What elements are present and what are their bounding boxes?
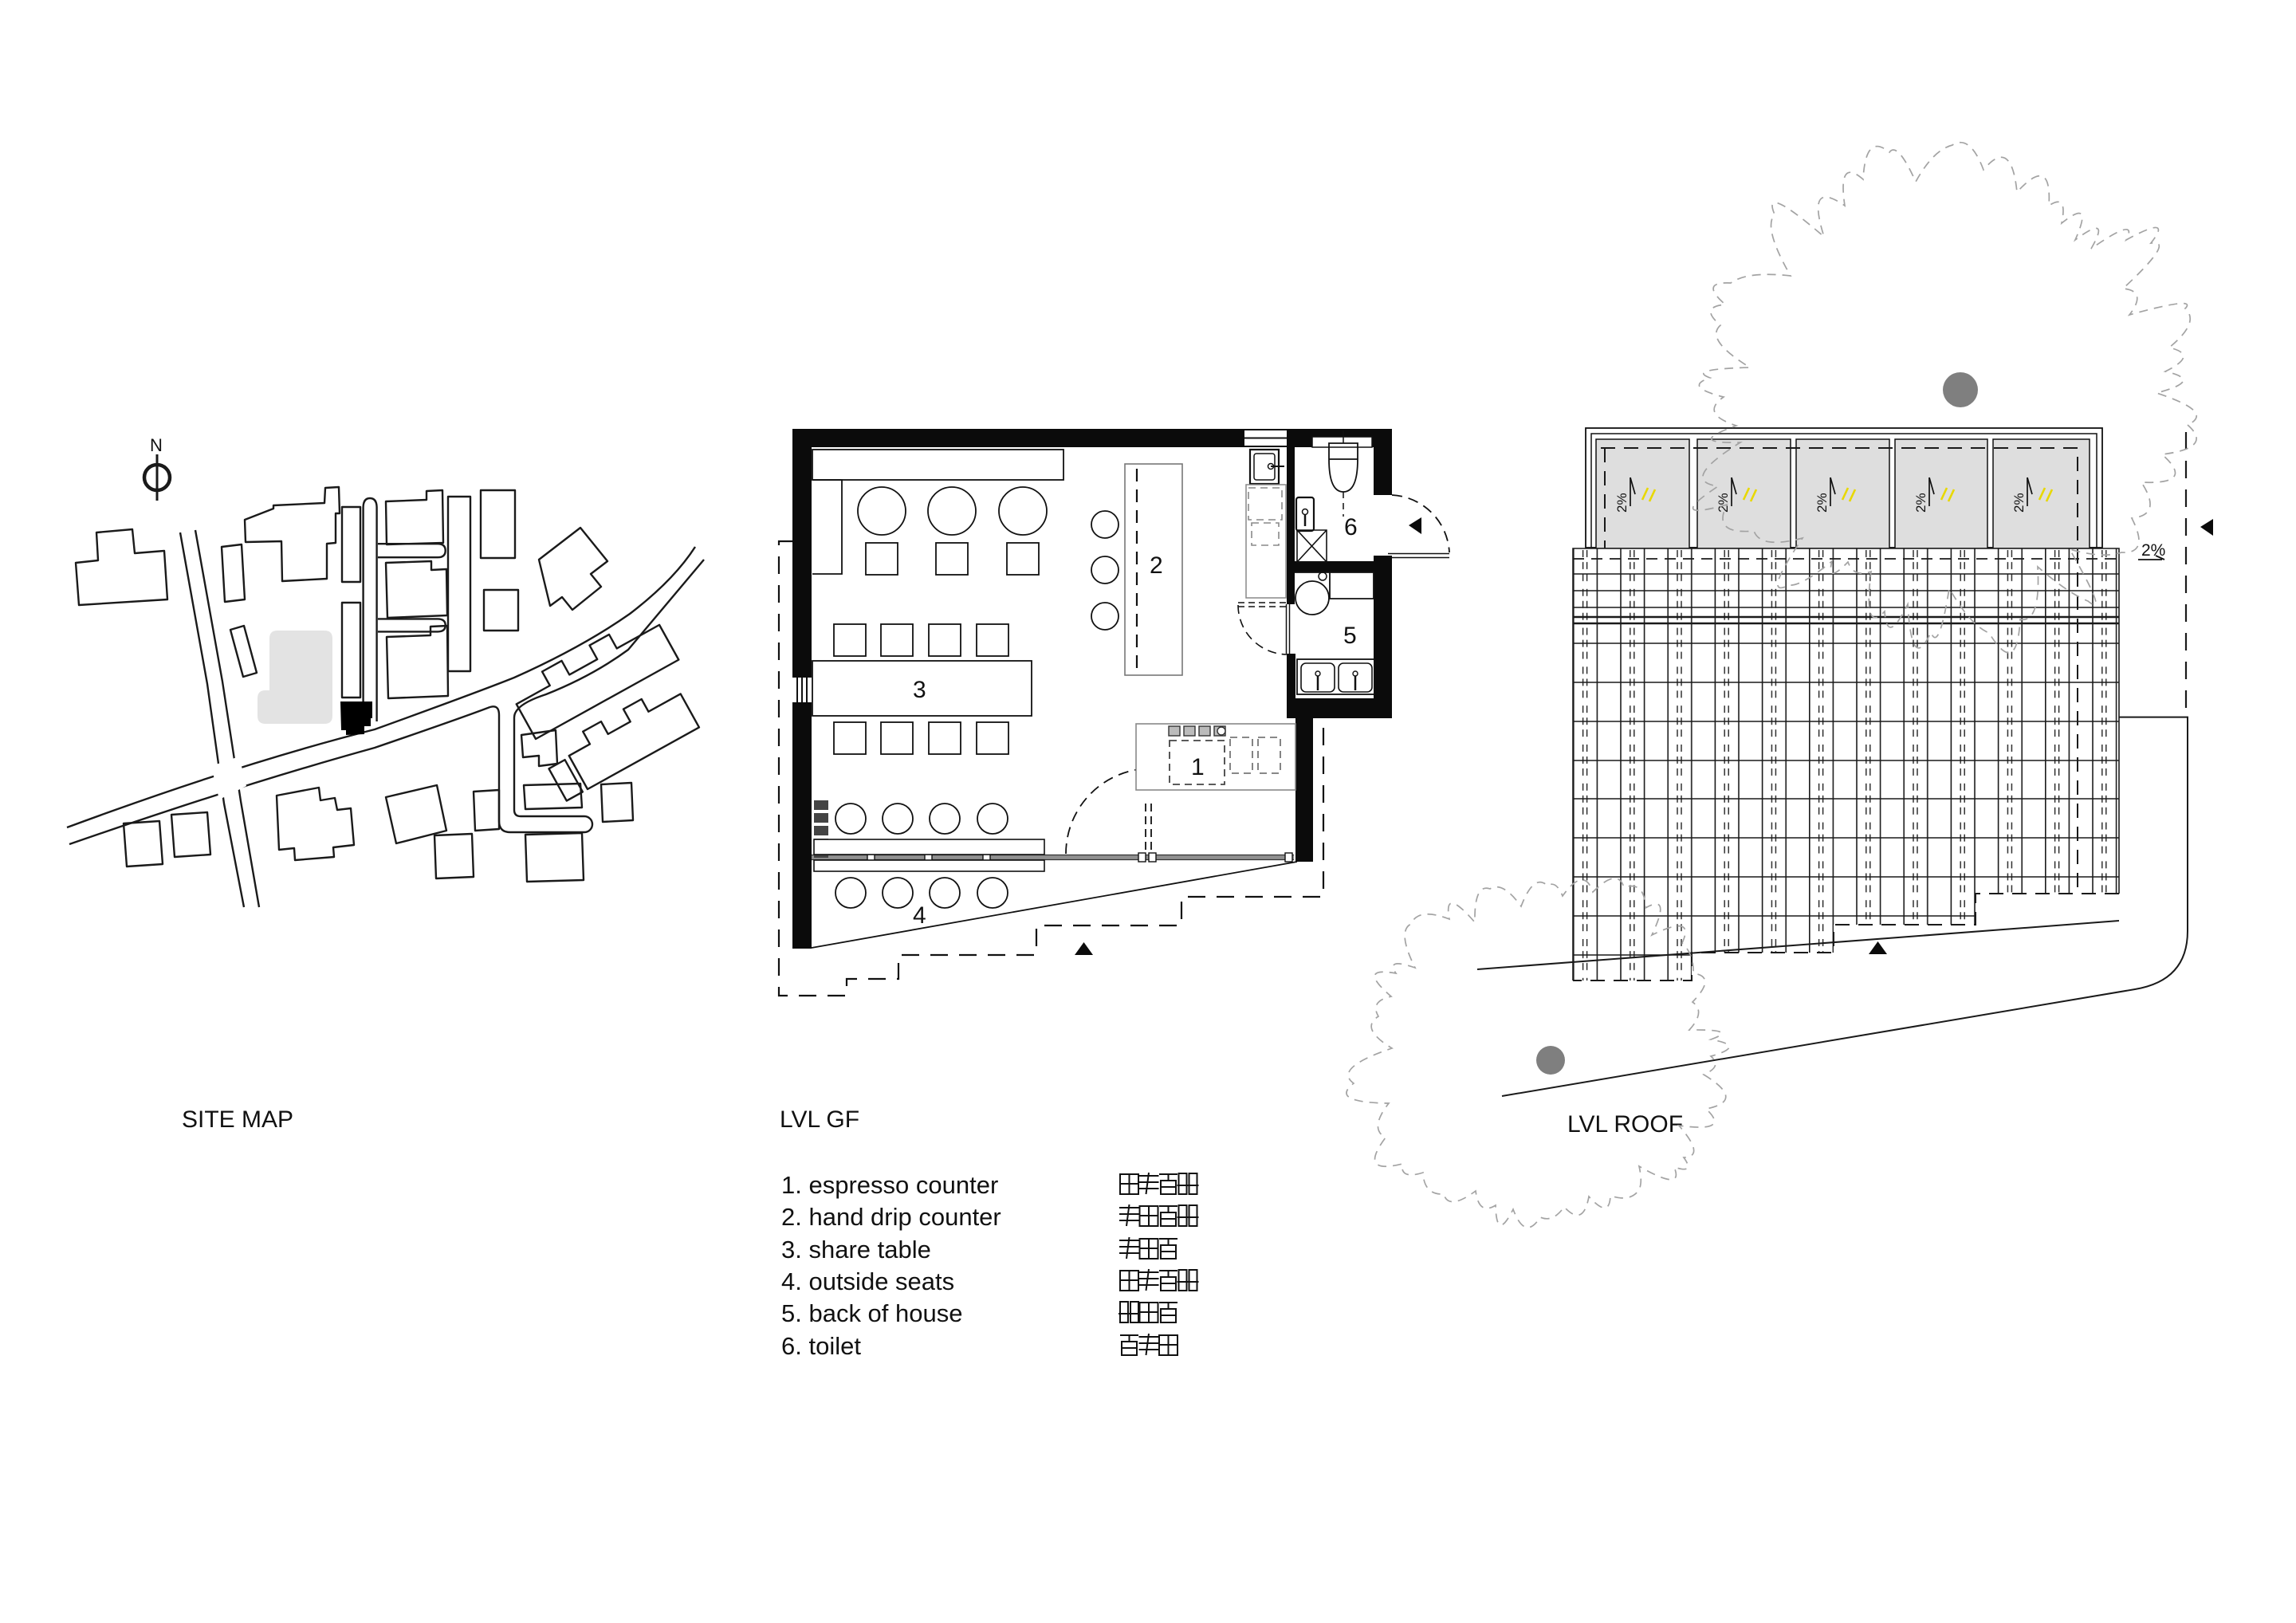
svg-text:LVL ROOF: LVL ROOF <box>1567 1111 1683 1138</box>
svg-text:4. outside seats: 4. outside seats <box>781 1267 954 1295</box>
svg-text:3: 3 <box>913 677 926 703</box>
svg-text:3. share table: 3. share table <box>781 1236 931 1263</box>
svg-text:6: 6 <box>1344 514 1358 540</box>
svg-text:4: 4 <box>913 902 926 929</box>
svg-text:2%: 2% <box>2011 493 2027 513</box>
svg-text:N: N <box>150 435 163 455</box>
svg-text:2%: 2% <box>1913 493 1928 513</box>
svg-text:2%: 2% <box>1614 493 1630 513</box>
svg-text:2%: 2% <box>1716 493 1731 513</box>
svg-text:2%: 2% <box>2141 541 2165 560</box>
svg-text:2%: 2% <box>1814 493 1830 513</box>
svg-text:5: 5 <box>1343 623 1357 649</box>
svg-text:SITE MAP: SITE MAP <box>182 1106 293 1133</box>
svg-text:2. hand drip counter: 2. hand drip counter <box>781 1203 1001 1231</box>
svg-text:2: 2 <box>1150 552 1163 579</box>
svg-text:5. back of house: 5. back of house <box>781 1299 963 1327</box>
svg-text:6. toilet: 6. toilet <box>781 1332 861 1360</box>
svg-text:1. espresso counter: 1. espresso counter <box>781 1171 998 1199</box>
svg-text:1: 1 <box>1191 754 1205 780</box>
svg-text:LVL GF: LVL GF <box>780 1106 859 1133</box>
